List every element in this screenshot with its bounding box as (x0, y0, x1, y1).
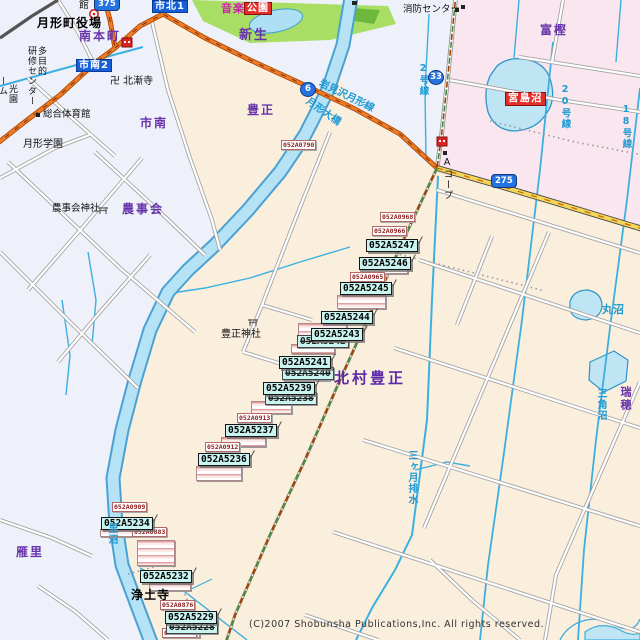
route-shield-375: 375 (94, 0, 120, 11)
water-label-satonuma: 里沼 (106, 523, 116, 545)
route-shield-6: 6 (300, 82, 316, 97)
ref-label-052A0909: 052A0909 (112, 502, 147, 512)
poi-label-sogo-taiikukan: 総合体育館 (43, 110, 91, 121)
ref-label-052A0912: 052A0912 (205, 442, 240, 452)
code-label-052A5246[interactable]: 052A5246 (359, 257, 411, 270)
code-label-052A5232[interactable]: 052A5232 (140, 570, 192, 583)
poi-label-nojikai-shrine: 農事会神社 (52, 204, 100, 215)
label-stack (196, 466, 242, 481)
water-label-2-gosen: 2号線 (418, 63, 428, 96)
code-label-052A5241[interactable]: 052A5241 (279, 356, 331, 369)
area-label-togashi: 富樫 (540, 24, 568, 37)
route-shield-33: 33 (428, 70, 444, 85)
area-label-karisato: 雁里 (16, 546, 44, 559)
poi-label-kan: 館 (79, 0, 89, 11)
route-shield-275: 275 (491, 174, 517, 188)
code-label-052A5245[interactable]: 052A5245 (340, 282, 392, 295)
ref-label-052A0913: 052A0913 (237, 413, 272, 423)
code-label-052A5247[interactable]: 052A5247 (366, 239, 418, 252)
water-label-mikazuki-haisui: 三ヶ月排水 (406, 450, 416, 505)
poi-label-ongaku: 音楽 (221, 3, 245, 15)
area-label-minamihoncho: 南本町 (79, 30, 121, 43)
poi-label-tamokuteki: 多目的 (36, 46, 45, 76)
area-label-mizuho: 瑞穂 (620, 386, 631, 412)
copyright-text: (C)2007 Shobunsha Publications,Inc. All … (249, 619, 544, 630)
poi-label-hokuzenji-temple: 卍 北漸寺 (110, 76, 153, 87)
selected-label-koen: 公園 (244, 2, 272, 15)
label-stack (137, 540, 175, 566)
water-label-sankakunuma: 三角沼 (595, 388, 605, 421)
area-label-nojikai: 農事会 (122, 203, 164, 216)
label-layer: 052A0790052A0968052A0966052A0965052A0913… (0, 0, 640, 640)
poi-label-mu-partial: ーム (0, 76, 6, 96)
area-label-kitamura-toyomasa: 北村豊正 (334, 370, 406, 387)
poi-label-tsukigata-gakuen: 月形学園 (23, 139, 63, 150)
water-label-marunuma: 丸沼 (602, 304, 624, 316)
water-label-tsukigata-ohashi: 月形大橋 (304, 96, 343, 128)
ref-label-052A0965: 052A0965 (350, 272, 385, 282)
ref-label-052A0966: 052A0966 (372, 226, 407, 236)
poi-label-kenshu-center: 研修センター (26, 46, 35, 106)
code-label-052A5243[interactable]: 052A5243 (311, 328, 363, 341)
district-box-ichinami2: 市南2 (76, 59, 112, 72)
water-label-18-gosen: 18号線 (621, 104, 631, 149)
poi-label-a-coop: Aコープ (442, 157, 452, 201)
area-label-shinsei: 新生 (239, 29, 269, 44)
area-label-toyomasa: 豊正 (247, 104, 275, 117)
area-label-shinami: 市南 (140, 117, 168, 130)
map-canvas: 052A0790052A0968052A0966052A0965052A0913… (0, 0, 640, 640)
selected-label-miyajimanuma: 宮島沼 (505, 92, 546, 106)
poi-label-koen-partial: 光園 (7, 84, 16, 104)
poi-label-toyomasa-shrine: 豊正神社 (221, 329, 261, 340)
poi-label-jodoji-temple: 浄土寺 (131, 589, 170, 602)
label-stack (337, 295, 386, 309)
poi-label-tsukigata-town-hall: 月形町役場 (37, 17, 102, 30)
code-label-052A5244[interactable]: 052A5244 (321, 311, 373, 324)
ref-label-052A0790: 052A0790 (281, 140, 316, 150)
code-label-052A5237[interactable]: 052A5237 (225, 424, 277, 437)
code-label-052A5236[interactable]: 052A5236 (198, 453, 250, 466)
water-label-20-gosen: 20号線 (560, 84, 570, 129)
district-box-ichikita1: 市北1 (152, 0, 188, 13)
poi-label-shobo-center: 消防センター (403, 5, 460, 16)
code-label-052A5229[interactable]: 052A5229 (165, 611, 217, 624)
code-label-052A5239[interactable]: 052A5239 (263, 382, 315, 395)
ref-label-052A0968: 052A0968 (380, 212, 415, 222)
